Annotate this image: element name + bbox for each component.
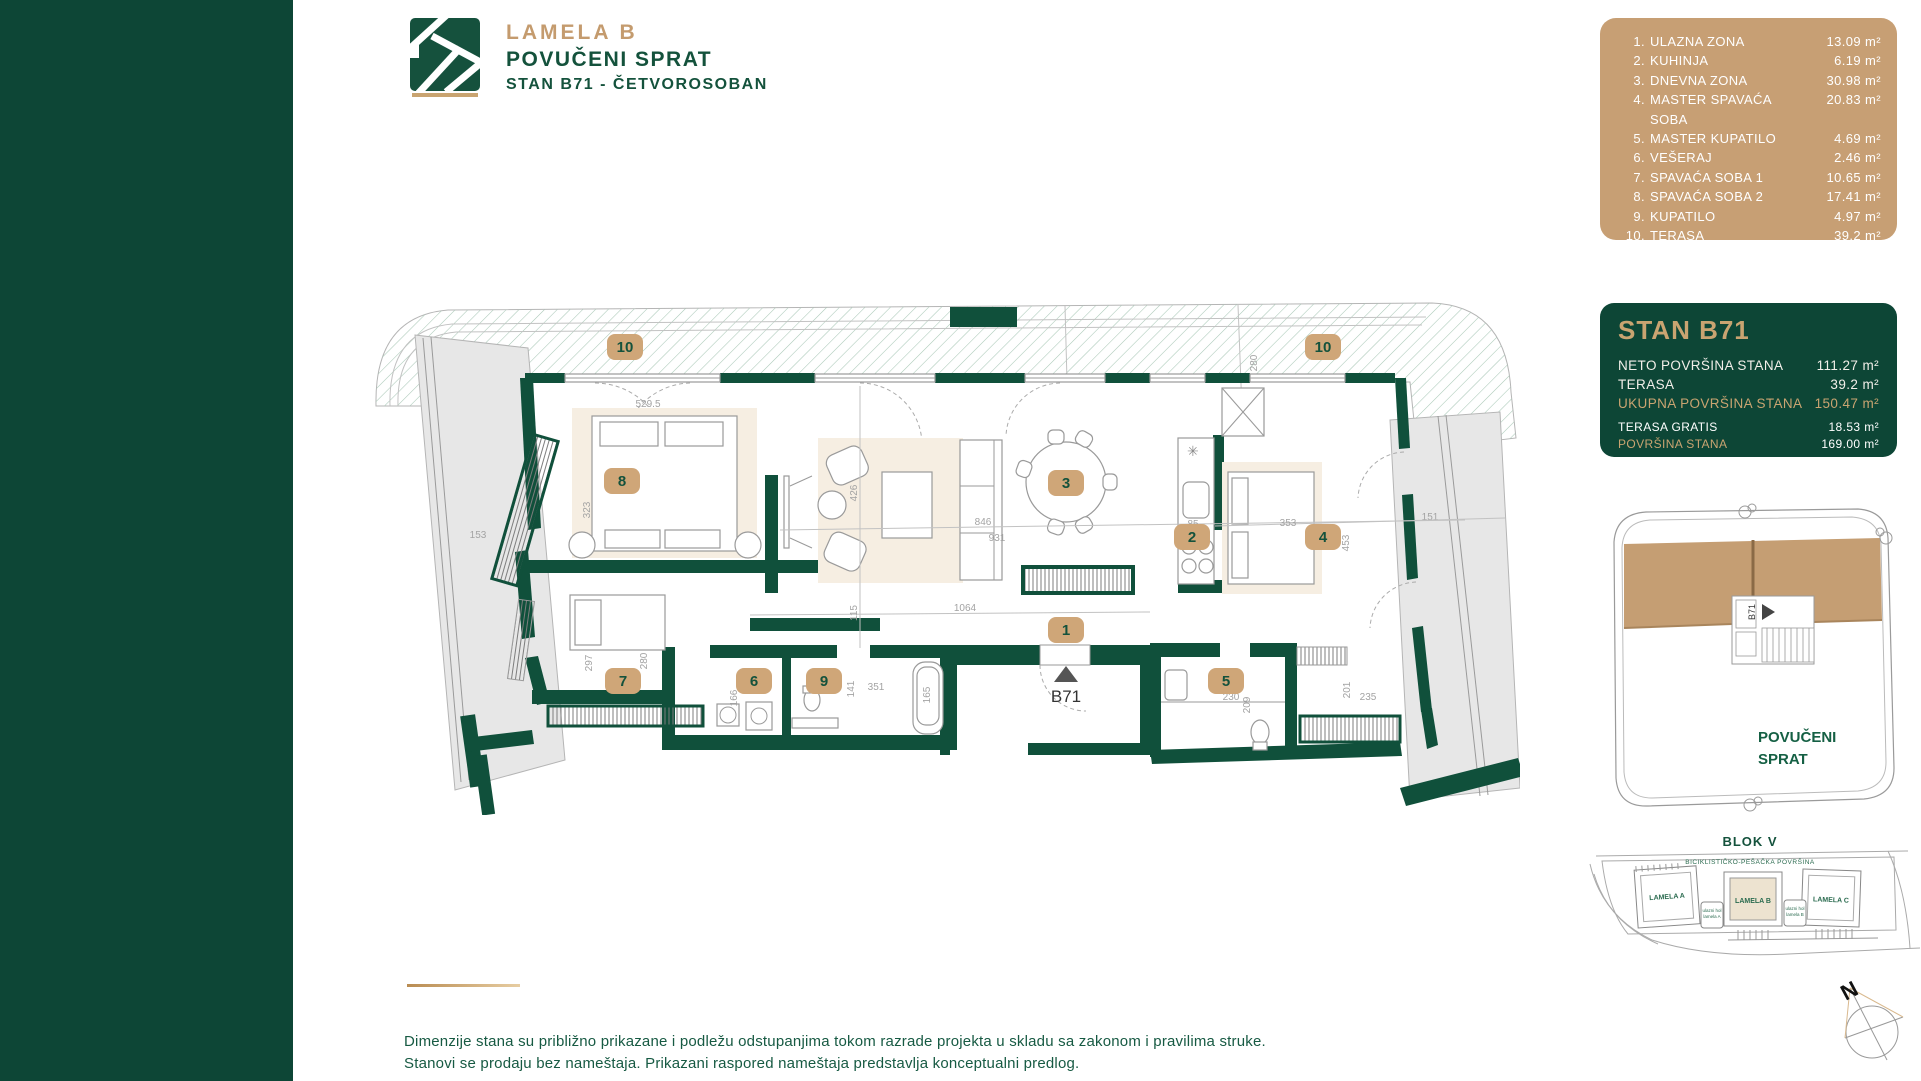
room-list-row: 5.MASTER KUPATILO4.69 m² [1620, 129, 1881, 148]
svg-text:lamela B: lamela B [1786, 912, 1804, 917]
room-badge-9: 9 [806, 668, 842, 694]
toilet [1251, 720, 1269, 744]
north-label: N [1836, 976, 1862, 1006]
floor-title: POVUČENI SPRAT [506, 46, 768, 73]
room-list-row: 1.ULAZNA ZONA13.09 m² [1620, 32, 1881, 51]
living-dining-furniture [784, 429, 1117, 583]
unit-summary-panel: STAN B71 NETO POVRŠINA STANA111.27 m² TE… [1600, 303, 1897, 457]
tv [784, 476, 789, 548]
svg-text:LAMELA B: LAMELA B [1735, 898, 1771, 905]
room-badge-1: 1 [1048, 617, 1084, 643]
radiator-living [1023, 567, 1133, 593]
svg-text:10: 10 [617, 339, 634, 356]
sofa [960, 440, 1002, 580]
entrance-arrow-icon [1054, 666, 1078, 682]
pedestrian-label: BICIKLISTIČKO-PEŠAČKA POVRŠINA [1685, 857, 1815, 866]
brand-title: LAMELA B [506, 20, 768, 46]
sink [1165, 670, 1187, 700]
room-badge-5: 5 [1208, 668, 1244, 694]
site-plan-title: BLOK V [1722, 834, 1777, 849]
kitchen-sink [1183, 482, 1209, 518]
dimension-label: 280 [1249, 354, 1260, 371]
disclaimer: Dimenzije stana su približno prikazane i… [404, 1031, 1266, 1075]
svg-text:ulazni hol: ulazni hol [1785, 906, 1804, 911]
gold-divider [407, 984, 520, 987]
svg-text:lamela A: lamela A [1703, 914, 1720, 919]
svg-text:7: 7 [619, 673, 627, 690]
svg-text:529.5: 529.5 [635, 399, 660, 410]
summary-row-total: UKUPNA POVRŠINA STANA150.47 m² [1618, 394, 1879, 413]
entrance-hall-left: ulazni hol lamela A [1701, 902, 1723, 928]
unit-marker-label: B71 [1051, 687, 1081, 706]
terrace-right: 151 [1390, 412, 1520, 806]
svg-text:166: 166 [729, 689, 740, 706]
disclaimer-line-2: Stanovi se prodaju bez nameštaja. Prikaz… [404, 1053, 1266, 1075]
svg-text:201: 201 [1342, 681, 1353, 698]
summary-row: TERASA39.2 m² [1618, 375, 1879, 394]
terrace-left: 153 [415, 335, 565, 815]
room-badge-3: 3 [1048, 470, 1084, 496]
building-lamela-c: LAMELA C [1801, 869, 1861, 927]
kitchen-fixtures: ✳ [1178, 438, 1214, 584]
room-badge-7: 7 [605, 668, 641, 694]
fridge-symbol: ✳ [1187, 443, 1199, 459]
room-badge-10-left: 10 [607, 334, 643, 360]
entrance-hall-right: ulazni hol lamela B [1784, 900, 1806, 926]
svg-text:1: 1 [1062, 622, 1070, 639]
bedroom1-furniture [570, 595, 665, 650]
room-list-row: 4.MASTER SPAVAĆA SOBA20.83 m² [1620, 90, 1881, 129]
compass: N [1818, 972, 1918, 1078]
building-lamela-a: LAMELA A [1634, 862, 1700, 928]
svg-text:9: 9 [820, 673, 828, 690]
dimension-label: 151 [1422, 512, 1439, 523]
radiator-bed1 [548, 706, 703, 726]
room-list-row: 3.DNEVNA ZONA30.98 m² [1620, 71, 1881, 90]
room-badge-10-right: 10 [1305, 334, 1341, 360]
svg-text:297: 297 [584, 654, 595, 671]
logo-gold-underline [412, 93, 478, 97]
summary-row: POVRŠINA STANA169.00 m² [1618, 436, 1879, 453]
brand-sidebar [0, 0, 293, 1081]
summary-row: NETO POVRŠINA STANA111.27 m² [1618, 356, 1879, 375]
svg-text:1064: 1064 [954, 603, 977, 614]
svg-text:ulazni hol: ulazni hol [1702, 908, 1721, 913]
svg-text:453: 453 [1341, 534, 1352, 551]
room-list-panel: 1.ULAZNA ZONA13.09 m² 2.KUHINJA6.19 m² 3… [1600, 18, 1897, 240]
svg-text:280: 280 [639, 652, 650, 669]
svg-text:141: 141 [846, 680, 857, 697]
floor-plan: 240 280 153 151 [360, 290, 1520, 815]
room-badge-4: 4 [1305, 524, 1341, 550]
room-list-row: 2.KUHINJA6.19 m² [1620, 51, 1881, 70]
radiator-hall [1300, 716, 1400, 742]
dimension-label: 153 [470, 530, 487, 541]
page: LAMELA B POVUČENI SPRAT STAN B71 - ČETVO… [0, 0, 1921, 1081]
svg-text:4: 4 [1319, 529, 1328, 546]
svg-text:353: 353 [1280, 518, 1297, 529]
room-list-row: 10.TERASA39.2 m² [1620, 226, 1881, 245]
master-bedroom-furniture [1222, 388, 1322, 594]
entrance: B71 [1040, 645, 1090, 711]
svg-text:6: 6 [750, 673, 758, 690]
svg-text:LAMELA C: LAMELA C [1813, 896, 1849, 904]
unit-summary-title: STAN B71 [1618, 315, 1879, 346]
svg-text:209: 209 [1242, 696, 1253, 713]
site-plan: BLOK V BICIKLISTIČKO-PEŠAČKA POVRŠINA LA… [1588, 830, 1920, 962]
room-list-row: 9.KUPATILO4.97 m² [1620, 207, 1881, 226]
room-list-row: 6.VEŠERAJ2.46 m² [1620, 148, 1881, 167]
svg-text:3: 3 [1062, 475, 1070, 492]
room-badge-6: 6 [736, 668, 772, 694]
building-lamela-b: LAMELA B [1724, 872, 1782, 926]
svg-text:351: 351 [868, 682, 885, 693]
svg-text:115: 115 [849, 605, 860, 621]
svg-text:8: 8 [618, 473, 626, 490]
svg-text:931: 931 [989, 533, 1006, 544]
room-list-row: 7.SPAVAĆA SOBA 110.65 m² [1620, 168, 1881, 187]
svg-text:10: 10 [1315, 339, 1332, 356]
svg-text:5: 5 [1222, 673, 1230, 690]
summary-row: TERASA GRATIS18.53 m² [1618, 419, 1879, 436]
terrace-wall-stub [950, 307, 1017, 327]
svg-text:426: 426 [849, 484, 860, 501]
svg-text:323: 323 [582, 501, 593, 518]
svg-text:846: 846 [975, 517, 992, 528]
washing-machine [746, 702, 772, 730]
key-plan-floor-label-1: POVUČENI [1758, 728, 1836, 746]
svg-text:2: 2 [1188, 529, 1196, 546]
bedroom2-furniture [569, 408, 761, 558]
header: LAMELA B POVUČENI SPRAT STAN B71 - ČETVO… [410, 18, 768, 100]
room-badge-2: 2 [1174, 524, 1210, 550]
key-plan-unit-label: B71 [1747, 604, 1757, 620]
room-badge-8: 8 [604, 468, 640, 494]
svg-text:235: 235 [1360, 692, 1377, 703]
brand-logo-icon [410, 18, 484, 100]
disclaimer-line-1: Dimenzije stana su približno prikazane i… [404, 1031, 1266, 1053]
key-plan: B71 POVUČENI SPRAT [1590, 500, 1910, 815]
key-plan-floor-label-2: SPRAT [1758, 751, 1808, 768]
svg-text:165: 165 [922, 686, 933, 703]
unit-title: STAN B71 - ČETVOROSOBAN [506, 73, 768, 97]
room-list-row: 8.SPAVAĆA SOBA 217.41 m² [1620, 187, 1881, 206]
